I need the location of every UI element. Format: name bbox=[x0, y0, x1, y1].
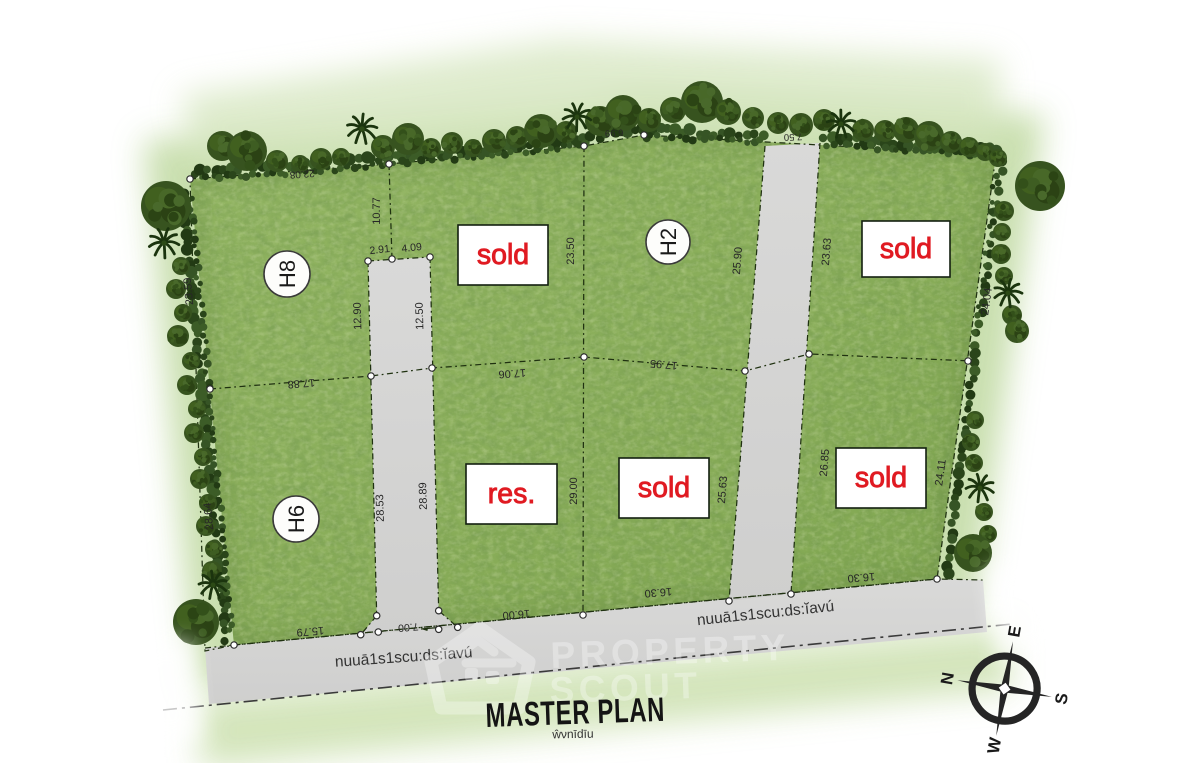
svg-text:22.08: 22.08 bbox=[289, 167, 315, 180]
svg-text:2.91: 2.91 bbox=[369, 243, 391, 257]
svg-text:26.85: 26.85 bbox=[818, 449, 832, 477]
svg-text:29.00: 29.00 bbox=[568, 477, 580, 505]
svg-text:sold: sold bbox=[638, 472, 690, 504]
svg-text:sold: sold bbox=[880, 233, 932, 265]
svg-text:4.09: 4.09 bbox=[401, 241, 423, 255]
svg-text:sold: sold bbox=[855, 462, 907, 494]
svg-text:10.77: 10.77 bbox=[371, 197, 383, 225]
svg-text:25.90: 25.90 bbox=[731, 247, 745, 275]
svg-text:15.79: 15.79 bbox=[296, 624, 324, 638]
svg-text:6.99: 6.99 bbox=[605, 127, 624, 139]
svg-text:28.53: 28.53 bbox=[374, 494, 387, 522]
svg-text:7.00: 7.00 bbox=[397, 620, 419, 634]
svg-text:ŵνnīdīu: ŵνnīdīu bbox=[551, 727, 594, 742]
svg-text:H2: H2 bbox=[656, 228, 681, 256]
svg-text:12.50: 12.50 bbox=[414, 302, 427, 330]
svg-text:7.50: 7.50 bbox=[784, 131, 803, 143]
svg-text:17.88: 17.88 bbox=[287, 376, 315, 390]
svg-text:17.95: 17.95 bbox=[650, 357, 678, 371]
svg-text:H6: H6 bbox=[284, 505, 309, 533]
svg-text:17.06: 17.06 bbox=[498, 366, 526, 380]
svg-text:H8: H8 bbox=[275, 260, 300, 288]
svg-text:sold: sold bbox=[477, 239, 529, 271]
svg-text:23.50: 23.50 bbox=[565, 237, 577, 265]
svg-text:16.30: 16.30 bbox=[847, 570, 875, 584]
svg-text:16.30: 16.30 bbox=[644, 585, 672, 599]
svg-text:res.: res. bbox=[488, 478, 536, 510]
svg-text:28.89: 28.89 bbox=[417, 482, 430, 510]
svg-text:23.63: 23.63 bbox=[820, 238, 834, 266]
svg-text:25.63: 25.63 bbox=[716, 476, 730, 504]
svg-text:12.90: 12.90 bbox=[352, 302, 365, 330]
svg-text:16.00: 16.00 bbox=[502, 607, 530, 621]
